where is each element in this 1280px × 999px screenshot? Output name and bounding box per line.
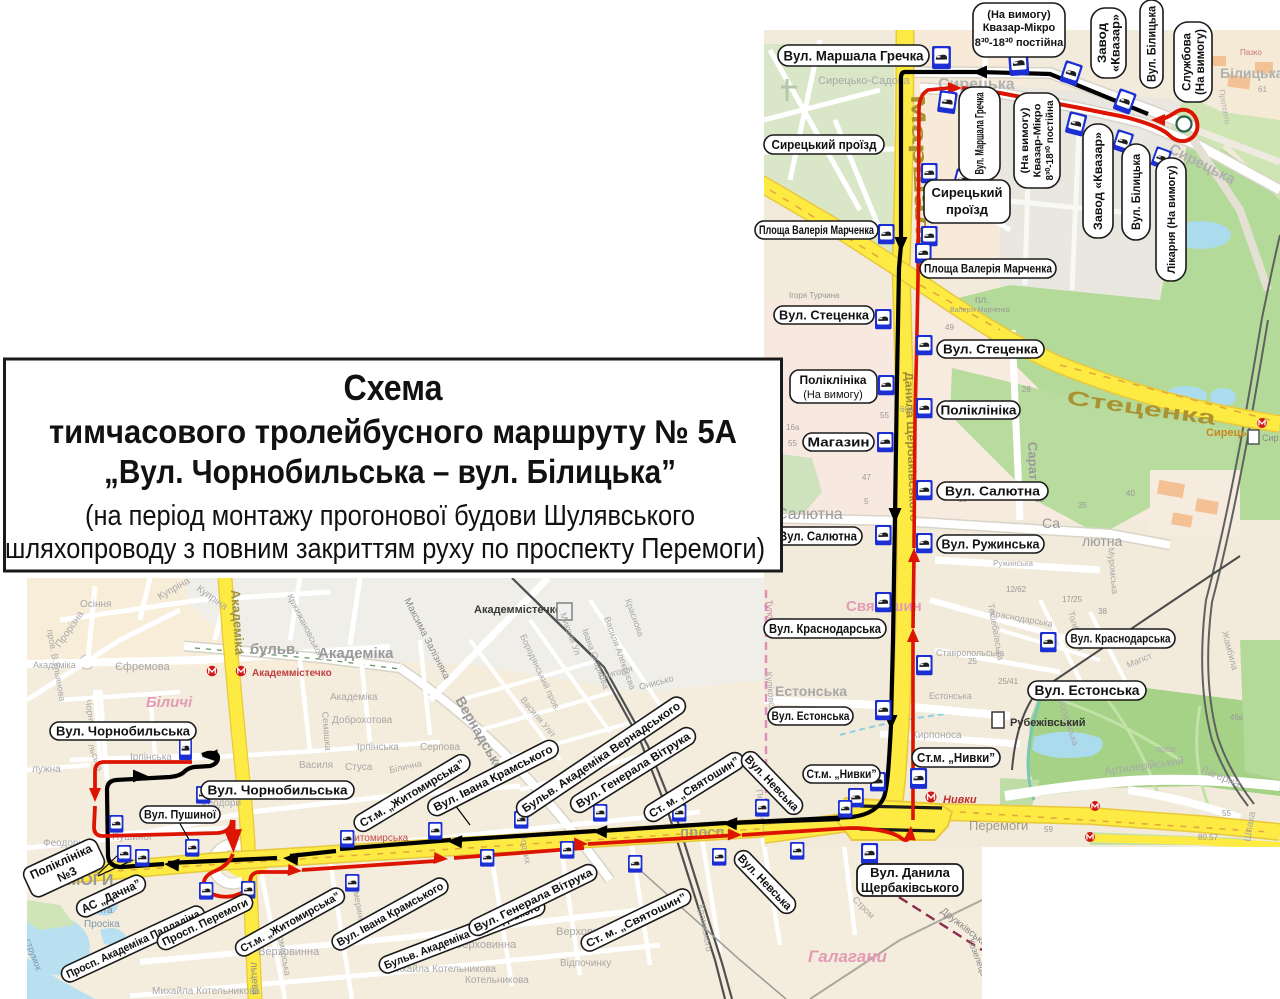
svg-text:25/41: 25/41 <box>998 677 1019 686</box>
svg-text:(на період монтажу прогонової: (на період монтажу прогонової будови Шул… <box>85 500 695 532</box>
svg-text:Доброхотова: Доброхотова <box>332 714 393 726</box>
svg-text:35: 35 <box>1078 501 1087 510</box>
svg-text:Вул. Данила: Вул. Данила <box>870 865 951 880</box>
svg-text:проїзд: проїзд <box>946 202 989 217</box>
svg-text:Вул. Стеценка: Вул. Стеценка <box>779 308 870 323</box>
svg-text:Стуса: Стуса <box>345 762 373 773</box>
svg-text:Академмістечко: Академмістечко <box>252 668 332 679</box>
svg-text:Вул. Стеценка: Вул. Стеценка <box>943 342 1039 357</box>
svg-text:Просіка: Просіка <box>84 919 120 930</box>
svg-text:Вул. Білицька: Вул. Білицька <box>1147 5 1159 82</box>
svg-text:49: 49 <box>945 323 954 332</box>
svg-text:Академіка: Академіка <box>330 692 378 703</box>
svg-text:Рубежівський: Рубежівський <box>1010 717 1085 729</box>
svg-text:Вул. Маршала Гречка: Вул. Маршала Гречка <box>973 92 987 174</box>
svg-text:Біличі: Біличі <box>146 694 193 711</box>
svg-text:Са: Са <box>1042 515 1060 531</box>
svg-text:Ст.м. „Нивки”: Ст.м. „Нивки” <box>807 767 877 781</box>
svg-text:Вул. Пушиної: Вул. Пушиної <box>144 808 217 822</box>
svg-text:Вул. Салютна: Вул. Салютна <box>779 529 858 543</box>
svg-text:Серпова: Серпова <box>420 742 461 753</box>
svg-text:Ірпінська: Ірпінська <box>357 742 399 753</box>
svg-text:Валерія Марченка: Валерія Марченка <box>950 306 1010 314</box>
svg-text:60а: 60а <box>900 405 914 414</box>
svg-text:Завод «Квазар»: Завод «Квазар» <box>1093 132 1105 230</box>
svg-text:Галагани: Галагани <box>808 947 887 966</box>
svg-text:(На вимогу): (На вимогу) <box>1019 108 1031 174</box>
svg-text:Лікарня (На вимогу): Лікарня (На вимогу) <box>1166 165 1178 273</box>
svg-text:(На вимогу): (На вимогу) <box>987 9 1051 21</box>
svg-text:Білицька: Білицька <box>1220 65 1280 81</box>
svg-text:16а: 16а <box>786 423 800 432</box>
svg-text:Вул. Краснодарська: Вул. Краснодарська <box>769 622 882 636</box>
svg-text:46в: 46в <box>1230 713 1243 722</box>
svg-text:Завод: Завод <box>1097 22 1109 63</box>
svg-text:пл.: пл. <box>975 295 989 306</box>
svg-text:Вул. Ружинська: Вул. Ружинська <box>942 537 1041 552</box>
svg-text:Вул. Чорнобильська: Вул. Чорнобильська <box>208 783 349 798</box>
svg-text:Михайла Котельникова: Михайла Котельникова <box>152 986 260 997</box>
svg-text:пров: пров <box>1156 744 1176 754</box>
svg-text:Вул. Краснодарська: Вул. Краснодарська <box>1071 632 1171 646</box>
svg-text:Схема: Схема <box>344 367 444 408</box>
svg-text:Котельникова: Котельникова <box>465 975 529 986</box>
svg-text:Вул. Білицька: Вул. Білицька <box>1131 153 1143 230</box>
svg-text:Вул. Чорнобильська: Вул. Чорнобильська <box>56 724 191 739</box>
svg-text:Службова: Службова <box>1181 32 1193 91</box>
svg-text:Кирпоноса: Кирпоноса <box>912 730 962 741</box>
svg-text:Вул. Естонська: Вул. Естонська <box>772 709 850 723</box>
svg-text:Площа Валерія Марченка: Площа Валерія Марченка <box>759 223 874 237</box>
svg-text:Вул. Маршала Гречка: Вул. Маршала Гречка <box>784 47 924 63</box>
svg-text:Василя: Василя <box>299 760 333 771</box>
svg-text:Сирецько-Садова: Сирецько-Садова <box>818 75 911 87</box>
svg-text:„Вул. Чорнобильська – вул. Біл: „Вул. Чорнобильська – вул. Білицька” <box>104 453 676 490</box>
svg-text:Естонська: Естонська <box>929 691 972 701</box>
svg-text:Вул. Естонська: Вул. Естонська <box>1035 683 1141 698</box>
svg-text:5: 5 <box>864 497 869 506</box>
svg-text:Нивки: Нивки <box>943 794 977 806</box>
svg-text:(На вимогу): (На вимогу) <box>803 389 863 401</box>
svg-text:Площа Валерія Марченка: Площа Валерія Марченка <box>924 262 1052 276</box>
svg-text:28: 28 <box>1022 385 1031 394</box>
svg-text:Ст.м. „Нивки”: Ст.м. „Нивки” <box>917 751 995 765</box>
svg-text:Сирець: Сирець <box>1206 427 1247 439</box>
svg-text:тимчасового тролейбусного марш: тимчасового тролейбусного маршруту № 5А <box>49 413 737 450</box>
svg-text:бульв.: бульв. <box>250 641 299 658</box>
svg-text:(На вимогу): (На вимогу) <box>1195 29 1207 95</box>
svg-text:55: 55 <box>1222 809 1231 818</box>
svg-text:Квазар-Мікро: Квазар-Мікро <box>983 22 1056 34</box>
svg-text:Єфремова: Єфремова <box>115 661 171 673</box>
svg-text:25: 25 <box>968 657 977 666</box>
svg-text:Поліклініка: Поліклініка <box>941 403 1018 418</box>
svg-text:80,57: 80,57 <box>1198 833 1219 842</box>
svg-text:Сирецький: Сирецький <box>931 185 1002 200</box>
svg-text:лужна: лужна <box>32 764 61 775</box>
svg-text:Ружинська: Ружинська <box>993 559 1034 568</box>
svg-text:59: 59 <box>1044 825 1053 834</box>
svg-text:40: 40 <box>1126 489 1135 498</box>
svg-text:47: 47 <box>862 473 871 482</box>
svg-text:Магазин: Магазин <box>808 435 870 450</box>
svg-text:Естонська: Естонська <box>775 683 847 699</box>
svg-text:55: 55 <box>880 411 889 420</box>
svg-text:Квазар-Мікро: Квазар-Мікро <box>1032 104 1044 178</box>
svg-text:Сарат: Сарат <box>1025 442 1041 481</box>
svg-text:Академіка: Академіка <box>33 660 76 670</box>
svg-text:Пазко: Пазко <box>1240 48 1262 57</box>
svg-text:Поліклініка: Поліклініка <box>800 373 867 387</box>
svg-text:Академіка: Академіка <box>318 645 394 662</box>
svg-text:Салютна: Салютна <box>776 506 843 523</box>
svg-text:Академмістечко: Академмістечко <box>474 604 562 616</box>
svg-text:8³⁰-18³⁰ постійна: 8³⁰-18³⁰ постійна <box>1044 100 1056 180</box>
svg-text:Сирецький проїзд: Сирецький проїзд <box>772 137 878 152</box>
svg-text:Відпочинку: Відпочинку <box>560 958 611 969</box>
svg-text:38: 38 <box>1098 607 1107 616</box>
svg-text:8³⁰-18³⁰ постійна: 8³⁰-18³⁰ постійна <box>975 37 1064 49</box>
svg-text:шляхопроводу з повним закриття: шляхопроводу з повним закриттям руху по … <box>5 533 765 565</box>
svg-text:льцева: льцева <box>248 962 261 996</box>
svg-text:Перемоги: Перемоги <box>969 818 1028 833</box>
svg-text:Осіння: Осіння <box>80 599 111 610</box>
svg-text:61: 61 <box>1258 85 1267 94</box>
svg-text:Сир: Сир <box>1262 433 1279 443</box>
svg-text:Вул. Салютна: Вул. Салютна <box>945 484 1041 499</box>
svg-text:12/62: 12/62 <box>1006 585 1027 594</box>
svg-text:Ігоря Турчина: Ігоря Турчина <box>789 291 840 300</box>
svg-text:55: 55 <box>788 439 797 448</box>
svg-text:Щербаківського: Щербаківського <box>861 880 959 895</box>
svg-text:17/25: 17/25 <box>1062 595 1083 604</box>
svg-text:«Квазар»: «Квазар» <box>1110 14 1122 72</box>
